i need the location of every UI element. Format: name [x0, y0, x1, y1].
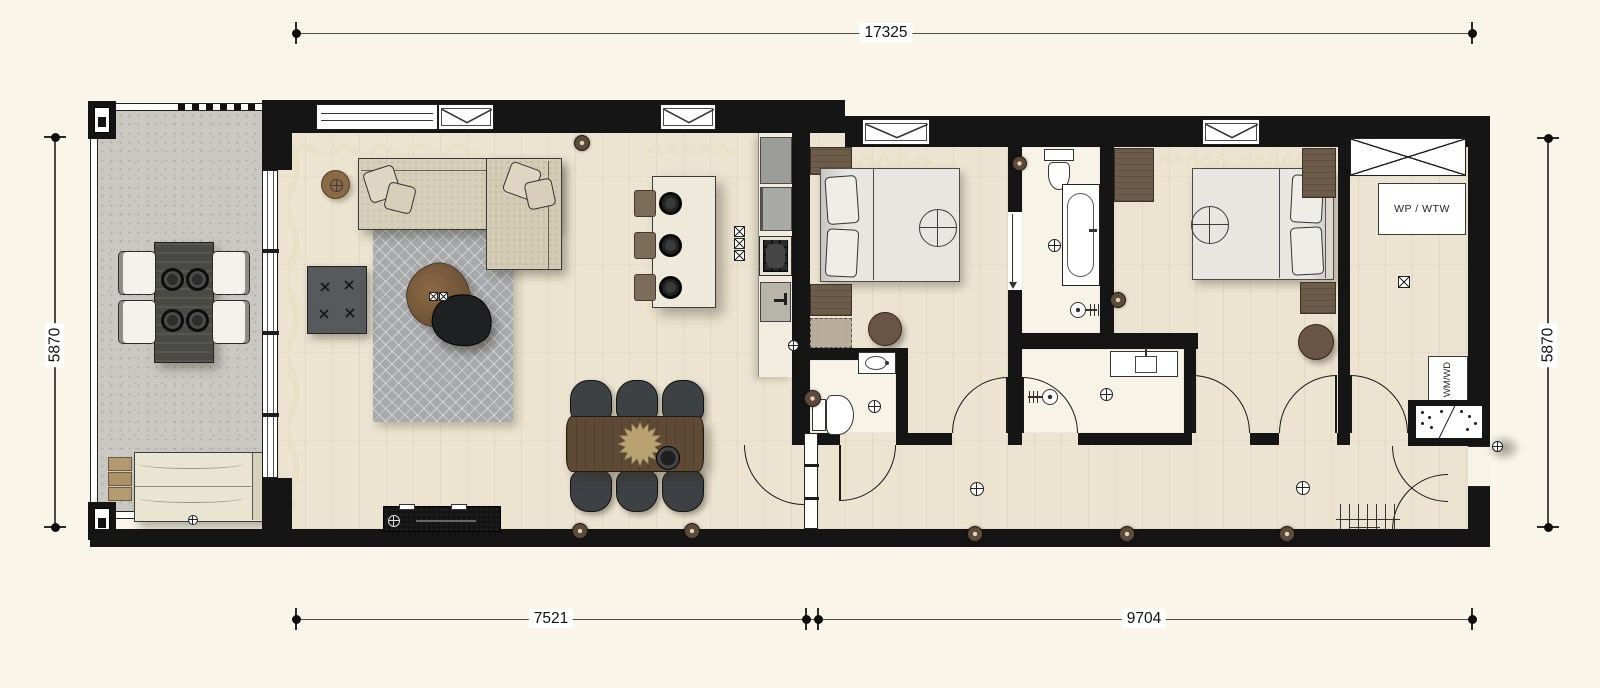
cabinet-bed2-left: [1114, 148, 1154, 202]
nightstand-bed2-bottom: [1300, 282, 1336, 314]
downlight: [1119, 526, 1135, 542]
wall-bedroom2-storage: [1338, 147, 1350, 433]
wall-hallway: [1337, 433, 1350, 445]
coat-niche: [1416, 406, 1482, 438]
outdoor-chair: [212, 300, 250, 344]
exterior-wall-right-upper: [1468, 147, 1490, 400]
outdoor-plate: [186, 268, 209, 291]
duct-shaft: [1350, 138, 1466, 176]
vanity-sink: [1110, 351, 1178, 377]
cooktop: [759, 236, 792, 276]
wall-hallway: [908, 433, 952, 445]
bar-stool: [659, 234, 682, 257]
floor-drain-ensuite: [1048, 239, 1061, 252]
balcony-railing-ticks: [178, 104, 270, 110]
window-bedroom-1: [862, 119, 930, 145]
tv-sideboard: [383, 506, 501, 532]
doorbell: [1492, 441, 1503, 452]
vent-symbol-table: [429, 292, 438, 301]
floor-drain-hall-2: [1296, 481, 1310, 495]
outdoor-chair: [212, 251, 250, 295]
outdoor-plate: [186, 309, 209, 332]
window-living-casement: [438, 104, 494, 130]
bathtub: [1062, 184, 1100, 286]
heat-pump-label: WP / WTW: [1394, 203, 1450, 215]
headboard-cabinet-bed1-bottom: [810, 284, 852, 316]
downlight: [1012, 156, 1027, 171]
washer-dryer-label: WM/WD: [1442, 361, 1453, 396]
wall-bathmain-left: [1008, 349, 1022, 433]
balcony-bench: [134, 452, 266, 522]
oven: [760, 187, 792, 231]
dining-chair: [662, 470, 704, 512]
floor-drain-bath-main: [1100, 388, 1113, 401]
curtain-living-top: [292, 139, 482, 155]
glass-partition-hall: [804, 433, 818, 529]
outdoor-plate: [161, 268, 184, 291]
vent-symbol-kitchen: [734, 238, 745, 249]
window-bedroom-2: [1202, 119, 1260, 145]
plant-pot: [321, 170, 350, 199]
bar-stool-back: [634, 232, 656, 259]
wall-hallway: [896, 433, 908, 445]
outdoor-dining-table: [154, 242, 214, 363]
bar-stool-back: [634, 190, 656, 217]
floor-drain-sideboard: [388, 515, 400, 527]
wc-basin: [858, 352, 896, 374]
sliding-door-ensuite: [1008, 212, 1022, 290]
floor-drain-wc: [868, 400, 881, 413]
pouf-bed2: [1298, 324, 1334, 360]
balcony-railing-left: [90, 103, 98, 540]
floor-plan: 17325 5870 5870 7521 9704: [0, 0, 1600, 688]
floor-drain-balcony: [188, 515, 198, 525]
corner-wall-bottom-left: [262, 478, 292, 529]
dining-chair: [616, 470, 658, 512]
downlight: [967, 526, 983, 542]
vent-symbol-kitchen: [734, 226, 745, 237]
downlight: [1279, 526, 1295, 542]
window-living-fixed: [316, 104, 438, 130]
nightstand-bed2-top: [1302, 148, 1336, 198]
outdoor-chair: [118, 251, 156, 295]
dimension-label-bottom-left: 7521: [529, 609, 573, 628]
outdoor-chair: [118, 300, 156, 344]
shower-ensuite: [1070, 300, 1102, 320]
dimension-label-bottom-right: 9704: [1122, 609, 1166, 628]
downlight: [1110, 292, 1126, 308]
curtain-bedroom-1: [840, 150, 932, 165]
vent-symbol-table: [439, 292, 448, 301]
curtain-living-left: [288, 140, 304, 514]
washer-dryer-unit: WM/WD: [1428, 356, 1468, 402]
floor-drain-hall-1: [970, 482, 984, 496]
bar-stool: [659, 276, 682, 299]
downlight: [684, 523, 700, 539]
kitchen-sink: [760, 282, 791, 322]
radiator-grille: [1336, 502, 1400, 532]
downlight: [574, 135, 590, 151]
dimension-label-top: 17325: [859, 23, 912, 42]
window-kitchen-casement: [660, 104, 716, 130]
wardrobe-bed1: [810, 318, 852, 348]
vent-symbol-kitchen: [734, 250, 745, 261]
outdoor-plate: [161, 309, 184, 332]
ceiling-light-bed2: [1191, 206, 1229, 244]
wall-hallway: [1078, 433, 1192, 445]
balcony-post-top: [88, 101, 116, 139]
dining-chair: [570, 470, 612, 512]
exterior-wall-right-lower: [1468, 487, 1490, 529]
downlight: [572, 523, 588, 539]
downlight: [804, 390, 821, 407]
facade-glazing-left: [262, 170, 278, 478]
floor-drain-kitchen: [788, 340, 799, 351]
wall-bath-mid-horizontal: [1008, 333, 1198, 349]
armchair: [307, 266, 367, 334]
dimension-label-left: 5870: [45, 323, 64, 367]
dimension-label-right: 5870: [1538, 323, 1557, 367]
curtain-kitchen-window: [648, 140, 734, 155]
heat-pump-unit: WP / WTW: [1378, 183, 1466, 235]
pouf-bed1: [868, 312, 902, 346]
toilet-ensuite-tank: [1044, 149, 1074, 161]
sofa-pillow: [523, 177, 556, 210]
curtain-bedroom-2-right: [1240, 150, 1310, 165]
coat-niche-frame: [1408, 400, 1490, 446]
curtain-bedroom-2-left: [1158, 150, 1230, 165]
ceiling-light-bed1: [919, 209, 957, 247]
wall-hallway: [1008, 433, 1022, 445]
side-crates: [108, 457, 132, 502]
bar-stool-back: [634, 274, 656, 301]
wall-hallway: [1250, 433, 1279, 445]
dinner-plate: [656, 446, 680, 470]
bar-stool: [659, 192, 682, 215]
wall-kitchen-bedroom1: [792, 133, 810, 433]
fridge: [760, 137, 792, 184]
wall-wc-right: [896, 348, 908, 433]
vent-symbol-storage: [1398, 276, 1410, 288]
